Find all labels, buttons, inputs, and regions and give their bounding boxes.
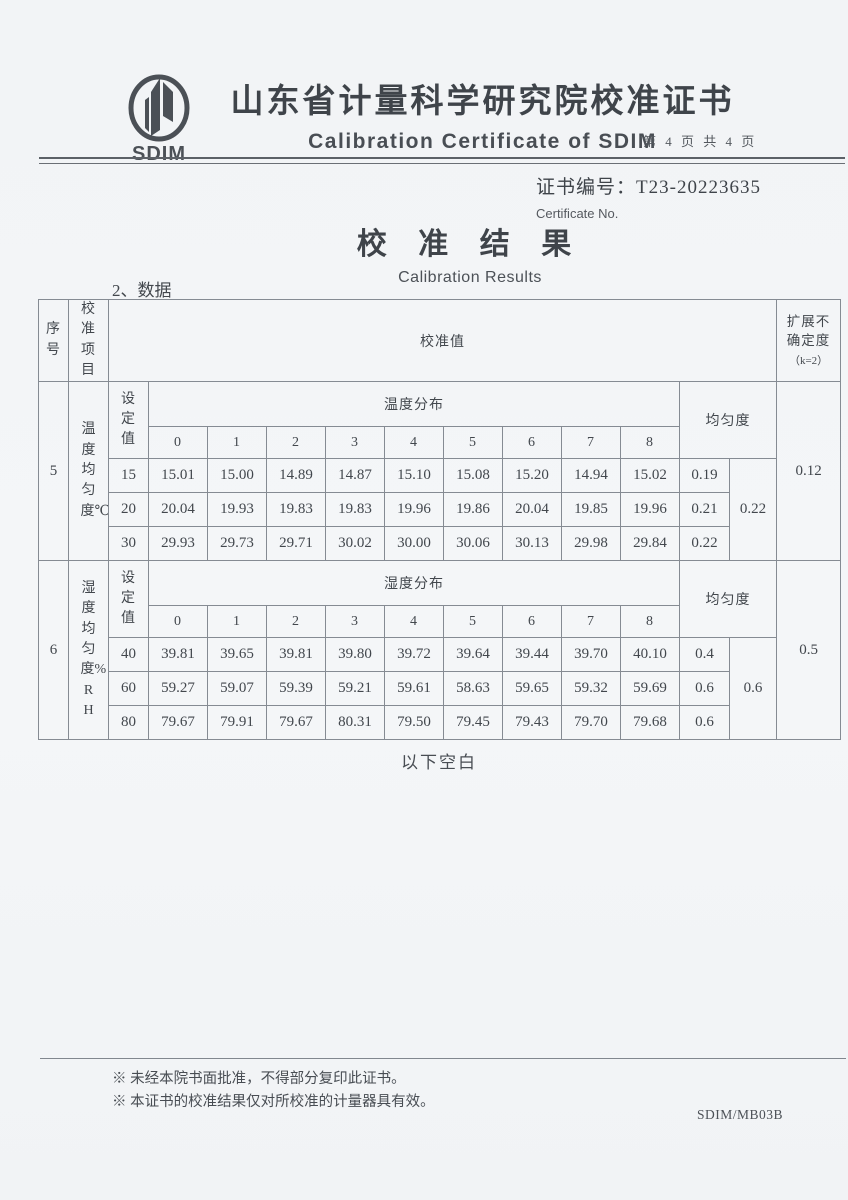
col-index: 5 xyxy=(444,606,503,638)
footer-rule xyxy=(40,1058,846,1059)
col-index: 2 xyxy=(267,606,326,638)
set-cell: 20 xyxy=(109,493,149,527)
value-cell: 29.73 xyxy=(208,527,267,561)
value-cell: 19.85 xyxy=(562,493,621,527)
value-cell: 19.83 xyxy=(267,493,326,527)
set-cell: 30 xyxy=(109,527,149,561)
set-cell: 15 xyxy=(109,459,149,493)
value-cell: 39.81 xyxy=(267,638,326,672)
value-cell: 15.08 xyxy=(444,459,503,493)
value-cell: 59.39 xyxy=(267,672,326,706)
set-cell: 80 xyxy=(109,706,149,740)
col-index: 3 xyxy=(326,427,385,459)
value-cell: 59.65 xyxy=(503,672,562,706)
uniformity-cell: 0.6 xyxy=(680,706,730,740)
value-cell: 39.65 xyxy=(208,638,267,672)
value-cell: 59.32 xyxy=(562,672,621,706)
value-cell: 79.43 xyxy=(503,706,562,740)
data-section-label: 2、数据 xyxy=(112,276,172,301)
value-cell: 39.64 xyxy=(444,638,503,672)
form-number: SDIM/MB03B xyxy=(697,1107,783,1123)
table-row: 5 温度均匀度℃ 设定值 温度分布 均匀度 0.12 xyxy=(39,382,841,427)
value-cell: 29.98 xyxy=(562,527,621,561)
value-cell: 29.71 xyxy=(267,527,326,561)
col-index: 1 xyxy=(208,606,267,638)
section-title: 校 准 结 果 Calibration Results xyxy=(92,219,848,287)
uncertainty-cell: 0.12 xyxy=(777,382,841,561)
certificate-page: SDIM 山东省计量科学研究院校准证书 Calibration Certific… xyxy=(0,0,848,1200)
col-index: 8 xyxy=(621,606,680,638)
footer-note-2: ※ 本证书的校准结果仅对所校准的计量器具有效。 xyxy=(112,1091,435,1114)
uniformity-cell: 0.19 xyxy=(680,459,730,493)
certificate-no-label: 证书编号： xyxy=(536,177,636,198)
table-row: 15 15.01 15.00 14.89 14.87 15.10 15.08 1… xyxy=(39,459,841,493)
footer-notes: ※ 未经本院书面批准，不得部分复印此证书。 ※ 本证书的校准结果仅对所校准的计量… xyxy=(112,1068,435,1114)
value-cell: 40.10 xyxy=(621,638,680,672)
value-cell: 39.44 xyxy=(503,638,562,672)
col-index: 2 xyxy=(267,427,326,459)
value-cell: 39.80 xyxy=(326,638,385,672)
value-cell: 15.00 xyxy=(208,459,267,493)
certificate-number-block: 证书编号：T23-20223635 Certificate No. xyxy=(536,172,761,221)
section-title-cn: 校 准 结 果 xyxy=(92,219,848,263)
uncertainty-header: 扩展不确定度 （k=2） xyxy=(777,300,841,382)
table-row: 80 79.67 79.91 79.67 80.31 79.50 79.45 7… xyxy=(39,706,841,740)
col-index: 4 xyxy=(385,427,444,459)
set-value-header: 设定值 xyxy=(109,382,149,459)
value-cell: 30.13 xyxy=(503,527,562,561)
overall-uniformity-cell: 0.22 xyxy=(730,459,777,561)
value-cell: 59.21 xyxy=(326,672,385,706)
set-cell: 60 xyxy=(109,672,149,706)
value-cell: 30.00 xyxy=(385,527,444,561)
col-index: 0 xyxy=(149,606,208,638)
seq-header: 序号 xyxy=(39,300,69,382)
title-cn: 山东省计量科学研究院校准证书 xyxy=(195,74,770,122)
value-cell: 14.94 xyxy=(562,459,621,493)
value-cell: 19.96 xyxy=(385,493,444,527)
value-cell: 29.93 xyxy=(149,527,208,561)
uniformity-cell: 0.22 xyxy=(680,527,730,561)
value-cell: 29.84 xyxy=(621,527,680,561)
value-cell: 19.93 xyxy=(208,493,267,527)
col-index: 3 xyxy=(326,606,385,638)
uniformity-header: 均匀度 xyxy=(680,382,777,459)
value-cell: 39.72 xyxy=(385,638,444,672)
uniformity-header: 均匀度 xyxy=(680,561,777,638)
value-cell: 80.31 xyxy=(326,706,385,740)
value-cell: 19.96 xyxy=(621,493,680,527)
dist-label: 温度分布 xyxy=(149,382,680,427)
item-cell: 温度均匀度℃ xyxy=(69,382,109,561)
value-cell: 15.10 xyxy=(385,459,444,493)
value-cell: 59.61 xyxy=(385,672,444,706)
value-cell: 79.68 xyxy=(621,706,680,740)
table-row: 40 39.81 39.65 39.81 39.80 39.72 39.64 3… xyxy=(39,638,841,672)
value-header: 校准值 xyxy=(109,300,777,382)
value-cell: 79.50 xyxy=(385,706,444,740)
dist-label: 湿度分布 xyxy=(149,561,680,606)
table-row: 30 29.93 29.73 29.71 30.02 30.00 30.06 3… xyxy=(39,527,841,561)
value-cell: 20.04 xyxy=(149,493,208,527)
value-cell: 19.83 xyxy=(326,493,385,527)
footer-note-1: ※ 未经本院书面批准，不得部分复印此证书。 xyxy=(112,1068,435,1091)
col-index: 7 xyxy=(562,427,621,459)
value-cell: 20.04 xyxy=(503,493,562,527)
value-cell: 79.67 xyxy=(149,706,208,740)
value-cell: 19.86 xyxy=(444,493,503,527)
col-index: 4 xyxy=(385,606,444,638)
uniformity-cell: 0.4 xyxy=(680,638,730,672)
value-cell: 15.20 xyxy=(503,459,562,493)
uncertainty-cell: 0.5 xyxy=(777,561,841,740)
value-cell: 58.63 xyxy=(444,672,503,706)
table-row: 60 59.27 59.07 59.39 59.21 59.61 58.63 5… xyxy=(39,672,841,706)
value-cell: 79.67 xyxy=(267,706,326,740)
table-row: 6 湿度均匀度%RH 设定值 湿度分布 均匀度 0.5 xyxy=(39,561,841,606)
value-cell: 14.87 xyxy=(326,459,385,493)
overall-uniformity-cell: 0.6 xyxy=(730,638,777,740)
value-cell: 30.06 xyxy=(444,527,503,561)
item-header: 校准项目 xyxy=(69,300,109,382)
value-cell: 39.70 xyxy=(562,638,621,672)
set-value-header: 设定值 xyxy=(109,561,149,638)
set-cell: 40 xyxy=(109,638,149,672)
value-cell: 15.02 xyxy=(621,459,680,493)
col-index: 1 xyxy=(208,427,267,459)
uniformity-cell: 0.21 xyxy=(680,493,730,527)
seq-cell: 6 xyxy=(39,561,69,740)
value-cell: 59.69 xyxy=(621,672,680,706)
col-index: 5 xyxy=(444,427,503,459)
table-header-row: 序号 校准项目 校准值 扩展不确定度 （k=2） xyxy=(39,300,841,382)
col-index: 0 xyxy=(149,427,208,459)
header-rule xyxy=(39,157,845,164)
col-index: 6 xyxy=(503,606,562,638)
value-cell: 30.02 xyxy=(326,527,385,561)
col-index: 6 xyxy=(503,427,562,459)
col-index: 8 xyxy=(621,427,680,459)
value-cell: 79.70 xyxy=(562,706,621,740)
value-cell: 15.01 xyxy=(149,459,208,493)
calibration-table: 序号 校准项目 校准值 扩展不确定度 （k=2） 5 温度均匀度℃ 设定值 温度… xyxy=(38,299,841,740)
seq-cell: 5 xyxy=(39,382,69,561)
section-title-en: Calibration Results xyxy=(92,269,848,287)
table-row: 20 20.04 19.93 19.83 19.83 19.96 19.86 2… xyxy=(39,493,841,527)
value-cell: 59.07 xyxy=(208,672,267,706)
value-cell: 59.27 xyxy=(149,672,208,706)
col-index: 7 xyxy=(562,606,621,638)
value-cell: 14.89 xyxy=(267,459,326,493)
calibration-table-wrap: 序号 校准项目 校准值 扩展不确定度 （k=2） 5 温度均匀度℃ 设定值 温度… xyxy=(38,299,841,740)
uniformity-cell: 0.6 xyxy=(680,672,730,706)
item-cell: 湿度均匀度%RH xyxy=(69,561,109,740)
below-blank-note: 以下空白 xyxy=(38,748,840,773)
page-number: 第 4 页 共 4 页 xyxy=(643,131,757,150)
value-cell: 79.91 xyxy=(208,706,267,740)
value-cell: 79.45 xyxy=(444,706,503,740)
certificate-no-value: T23-20223635 xyxy=(636,177,761,198)
value-cell: 39.81 xyxy=(149,638,208,672)
